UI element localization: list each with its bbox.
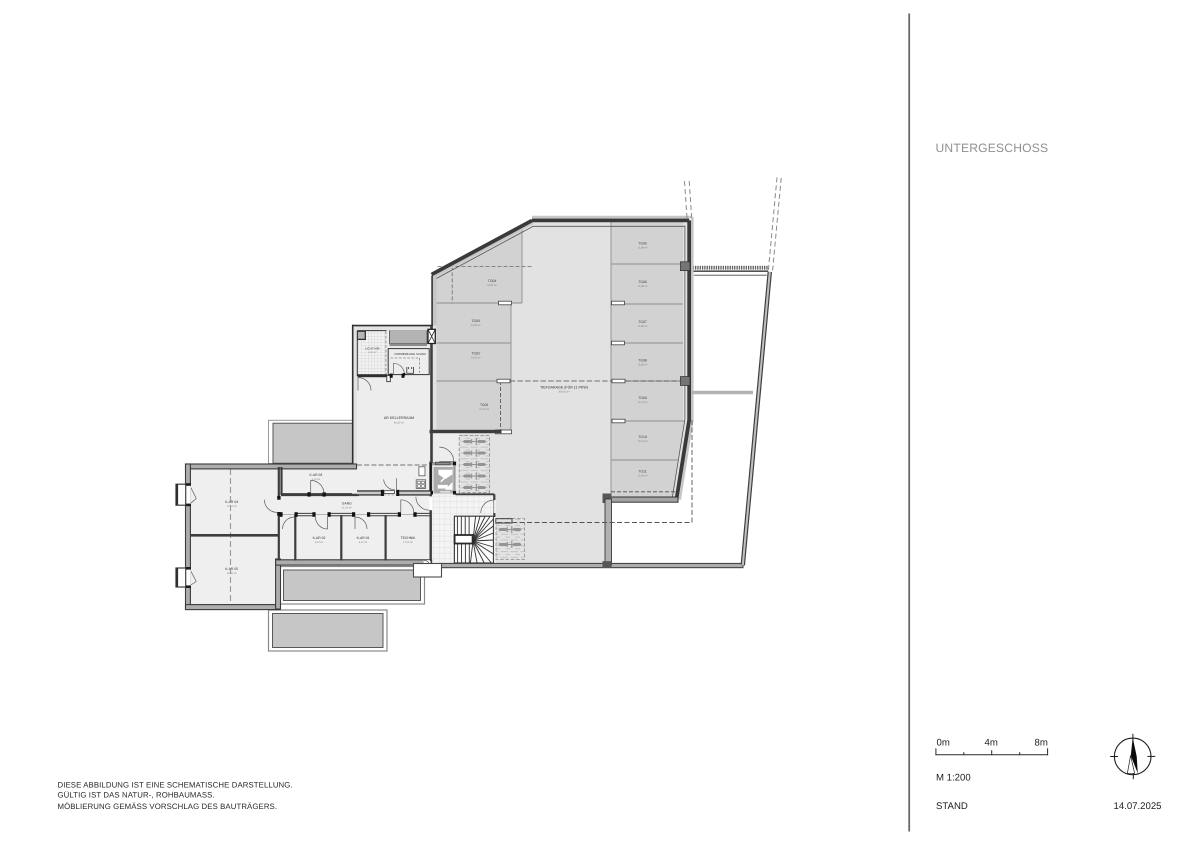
svg-text:GÜLTIG IST DAS NATUR-, ROHBAUM: GÜLTIG IST DAS NATUR-, ROHBAUMASS. (58, 791, 215, 800)
svg-text:6,01 m²: 6,01 m² (359, 541, 368, 544)
svg-text:19,30 m²: 19,30 m² (227, 572, 237, 575)
svg-text:TECHNIK: TECHNIK (401, 536, 417, 540)
svg-text:TG05: TG05 (638, 242, 647, 246)
svg-text:M 1:200: M 1:200 (936, 773, 971, 784)
svg-text:TG02: TG02 (471, 352, 480, 356)
svg-text:14,06 m²: 14,06 m² (471, 324, 481, 327)
svg-text:11,88 m²: 11,88 m² (638, 364, 648, 367)
svg-text:3,10 m²: 3,10 m² (368, 351, 376, 354)
svg-text:TG04: TG04 (488, 279, 497, 283)
svg-text:11,88 m²: 11,88 m² (638, 247, 648, 250)
svg-text:0m: 0m (937, 738, 950, 749)
svg-text:14.07.2025: 14.07.2025 (1113, 801, 1161, 812)
svg-text:TG10: TG10 (638, 435, 647, 439)
svg-text:358,41 m²: 358,41 m² (558, 391, 570, 394)
svg-text:K-AR 01: K-AR 01 (357, 536, 370, 540)
svg-text:14,76 m²: 14,76 m² (479, 408, 489, 411)
svg-text:12,61 m²: 12,61 m² (638, 440, 648, 443)
svg-text:K-AR 02: K-AR 02 (313, 536, 326, 540)
svg-text:GANG: GANG (342, 501, 352, 505)
svg-text:TG01: TG01 (480, 403, 489, 407)
svg-text:TG09: TG09 (638, 396, 647, 400)
svg-text:11,88 m²: 11,88 m² (638, 285, 648, 288)
svg-text:17,20 m²: 17,20 m² (403, 541, 413, 544)
svg-text:11,88 m²: 11,88 m² (638, 325, 648, 328)
svg-text:DIESE ABBILDUNG IST EINE SCHEM: DIESE ABBILDUNG IST EINE SCHEMATISCHE DA… (58, 781, 293, 790)
svg-text:24,50 m²: 24,50 m² (487, 284, 497, 287)
svg-text:K-AR 05: K-AR 05 (225, 567, 238, 571)
svg-text:TG11: TG11 (638, 470, 646, 474)
svg-text:LICHTHOF: LICHTHOF (365, 347, 380, 351)
svg-text:VORMERKUNG SAUNA: VORMERKUNG SAUNA (394, 352, 426, 356)
svg-text:AR KELLERRAUM: AR KELLERRAUM (384, 416, 414, 420)
svg-text:14,06 m²: 14,06 m² (471, 357, 481, 360)
svg-text:TG03: TG03 (471, 319, 480, 323)
svg-text:K-AR 04: K-AR 04 (225, 500, 238, 504)
svg-text:MÖBLIERUNG GEMÄSS VORSCHLAG DE: MÖBLIERUNG GEMÄSS VORSCHLAG DES BAUTRÄGE… (58, 802, 278, 811)
svg-text:TG07: TG07 (638, 320, 647, 324)
svg-text:TG06: TG06 (638, 280, 647, 284)
svg-text:12,41 m²: 12,41 m² (638, 401, 648, 404)
svg-text:STAND: STAND (936, 801, 968, 812)
svg-text:46,20 m²: 46,20 m² (394, 421, 404, 424)
svg-text:11,20 m²: 11,20 m² (342, 507, 352, 510)
svg-text:TIEFGARAGE (FÜR 11 PKW): TIEFGARAGE (FÜR 11 PKW) (540, 385, 588, 389)
svg-text:K-AR 03: K-AR 03 (309, 473, 322, 477)
svg-text:4m: 4m (985, 738, 998, 749)
svg-text:6,20 m²: 6,20 m² (315, 541, 324, 544)
svg-text:12,81 m²: 12,81 m² (638, 475, 648, 478)
svg-text:8m: 8m (1035, 738, 1048, 749)
svg-text:UNTERGESCHOSS: UNTERGESCHOSS (936, 141, 1049, 155)
svg-text:17,61 m²: 17,61 m² (227, 505, 237, 508)
svg-text:TG08: TG08 (638, 359, 647, 363)
